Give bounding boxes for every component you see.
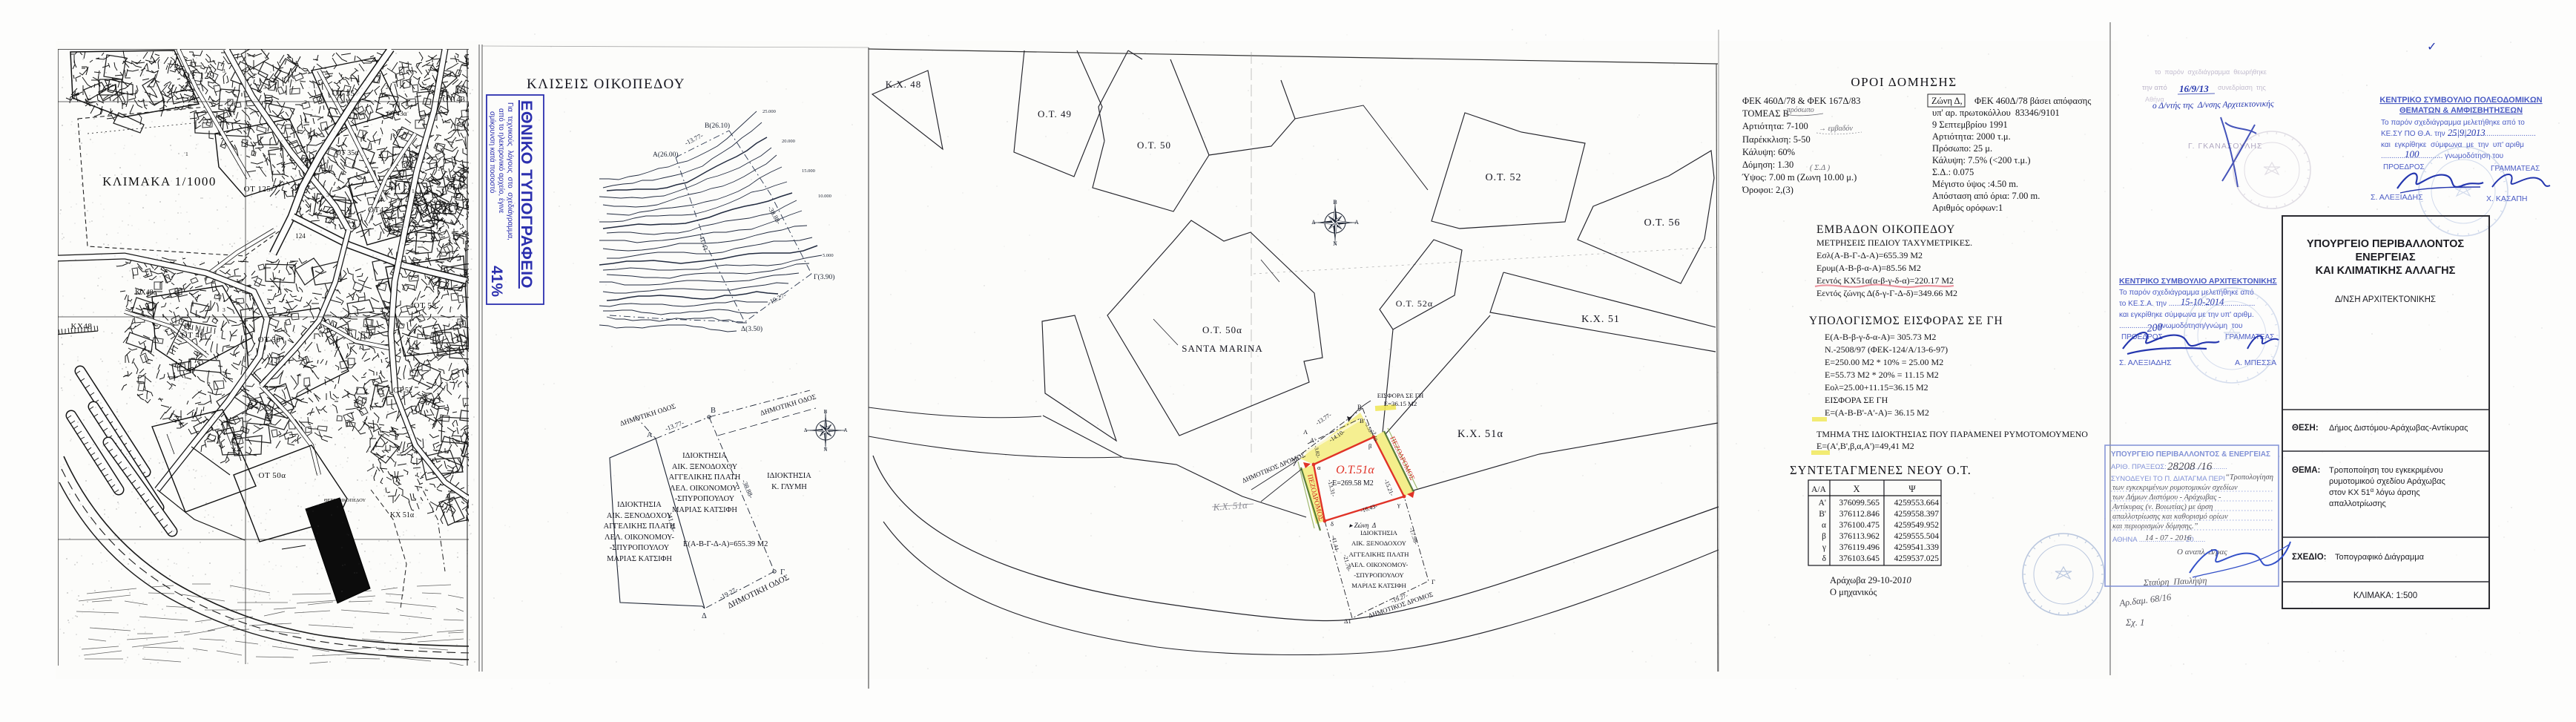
svg-text:1: 1	[412, 188, 415, 194]
svg-text:Ο μηχανικός: Ο μηχανικός	[1830, 587, 1877, 597]
svg-text:και εγκρίθηκε σύμφωνα με την υ: και εγκρίθηκε σύμφωνα με την υπ' αριθμ.	[2119, 310, 2254, 319]
svg-text:Α/Α: Α/Α	[1811, 485, 1827, 494]
svg-text:“Τροπολογίηση: “Τροπολογίηση	[2225, 473, 2273, 482]
svg-text:Εσλ(Α-Β-Γ-Δ-Α)=655.39 Μ2: Εσλ(Α-Β-Γ-Δ-Α)=655.39 Μ2	[1816, 250, 1923, 260]
svg-text:2: 2	[282, 180, 285, 187]
svg-text:Παρέκκλιση: 5-50: Παρέκκλιση: 5-50	[1742, 134, 1811, 145]
svg-text:Σ. ΑΛΕΞΙΑΔΗΣ: Σ. ΑΛΕΞΙΑΔΗΣ	[2371, 193, 2423, 202]
svg-text:3: 3	[319, 329, 322, 335]
svg-text:376103.645: 376103.645	[1839, 554, 1880, 563]
svg-text:β: β	[1822, 532, 1826, 541]
svg-text:συνεδρίαση της: συνεδρίαση της	[2218, 84, 2266, 91]
svg-text:Γ: Γ	[1432, 578, 1435, 585]
svg-text:Κ.Χ. 51: Κ.Χ. 51	[1581, 314, 1620, 325]
svg-text:Β: Β	[1333, 199, 1337, 206]
svg-text:Πρόσωπο: 25 μ.: Πρόσωπο: 25 μ.	[1932, 143, 1992, 154]
svg-text:3: 3	[326, 191, 329, 198]
svg-text:4259553.664: 4259553.664	[1894, 499, 1940, 508]
svg-text:ΘΕΜΑ:: ΘΕΜΑ:	[2292, 466, 2320, 475]
svg-text:ΠΡΟΕΔΡΟΣ: ΠΡΟΕΔΡΟΣ	[2383, 163, 2425, 171]
svg-text:Εολ=25.00+11.15=36.15 Μ2: Εολ=25.00+11.15=36.15 Μ2	[1825, 382, 1928, 393]
svg-text:SANTA MARINA: SANTA MARINA	[1182, 343, 1263, 354]
svg-text:ΚΛΙΜΑΚΑ: 1:500: ΚΛΙΜΑΚΑ: 1:500	[2353, 591, 2417, 600]
svg-text:Απόσταση από όρια: 7.00 m.: Απόσταση από όρια: 7.00 m.	[1932, 191, 2040, 201]
svg-text:Τοπογραφικό Διάγραμμα: Τοπογραφικό Διάγραμμα	[2335, 553, 2425, 562]
svg-text:ΛΕΛ. ΟΙΚΟΝΟΜΟΥ-: ΛΕΛ. ΟΙΚΟΝΟΜΟΥ-	[605, 534, 674, 542]
svg-text:Α: Α	[647, 431, 653, 439]
svg-text:16/9/13: 16/9/13	[2179, 83, 2209, 94]
svg-text:376100.475: 376100.475	[1839, 521, 1880, 530]
svg-text:ΑΙΚ. ΞΕΝΟΔΟΧΟΥ: ΑΙΚ. ΞΕΝΟΔΟΧΟΥ	[672, 463, 738, 471]
svg-text:Β: Β	[1357, 403, 1362, 410]
svg-text:Β(26.10): Β(26.10)	[705, 122, 730, 130]
svg-text:β: β	[1368, 442, 1371, 450]
svg-text:3: 3	[245, 410, 248, 417]
svg-text:14 - 07 - 2016: 14 - 07 - 2016	[2145, 534, 2192, 542]
svg-text:ΕΝΕΡΓΕΙΑΣ: ΕΝΕΡΓΕΙΑΣ	[2355, 252, 2415, 263]
svg-text:Ο.Τ. 50: Ο.Τ. 50	[1137, 140, 1171, 151]
svg-text:ΚΧ48α: ΚΧ48α	[135, 289, 157, 297]
svg-text:ΕΙΣΦΟΡΑ ΣΕ ΓΗ: ΕΙΣΦΟΡΑ ΣΕ ΓΗ	[1825, 395, 1888, 405]
svg-text:ΟΤ 35: ΟΤ 35	[332, 89, 355, 98]
svg-text:Ε=269.58 Μ2: Ε=269.58 Μ2	[1332, 479, 1374, 488]
svg-text:2: 2	[415, 143, 418, 150]
svg-text:2: 2	[386, 84, 389, 91]
svg-text:Χ: Χ	[1853, 484, 1859, 494]
svg-text:ΟΡΟΙ ΔΟΜΗΣΗΣ: ΟΡΟΙ ΔΟΜΗΣΗΣ	[1851, 75, 1957, 89]
svg-text:ΟΤ 53: ΟΤ 53	[414, 301, 437, 310]
svg-text:→ εμβαδόν: → εμβαδόν	[1819, 125, 1853, 133]
svg-text:Ε=250.00 Μ2 * 10% = 25.00 Μ2: Ε=250.00 Μ2 * 10% = 25.00 Μ2	[1825, 357, 1943, 367]
svg-text:Σχ. 1: Σχ. 1	[2125, 617, 2144, 628]
svg-text:Ψ: Ψ	[1908, 484, 1916, 494]
svg-text:2: 2	[208, 381, 211, 387]
svg-text:ΛΕΛ. ΟΙΚΟΝΟΜΟΥ-: ΛΕΛ. ΟΙΚΟΝΟΜΟΥ-	[1350, 561, 1409, 568]
svg-text:100: 100	[2405, 148, 2419, 160]
svg-text:Εεντός ζώνης Δ(δ-γ-Γ-Δ-δ)=349.: Εεντός ζώνης Δ(δ-γ-Γ-Δ-δ)=349.66 Μ2	[1816, 288, 1957, 298]
svg-text:Κ. ΓΛΥΜΗ: Κ. ΓΛΥΜΗ	[771, 483, 807, 491]
svg-text:Όροφοι: 2,(3): Όροφοι: 2,(3)	[1742, 185, 1793, 195]
svg-text:25|9|2013: 25|9|2013	[2448, 128, 2486, 138]
svg-text:πρόσωπο: πρόσωπο	[1787, 106, 1814, 114]
svg-text:ΥΠΟΥΡΓΕΙΟ ΠΕΡΙΒΑΛΛΟΝΤΟΣ & ΕΝΕΡ: ΥΠΟΥΡΓΕΙΟ ΠΕΡΙΒΑΛΛΟΝΤΟΣ & ΕΝΕΡΓΕΙΑΣ	[2111, 450, 2270, 459]
svg-text:Δ: Δ	[702, 612, 707, 620]
svg-text:ΣΥΝΤΕΤΑΓΜΕΝΕΣ ΝΕΟΥ Ο.Τ.: ΣΥΝΤΕΤΑΓΜΕΝΕΣ ΝΕΟΥ Ο.Τ.	[1790, 463, 1971, 477]
svg-text:-ΣΠΥΡΟΠΟΥΛΟΥ: -ΣΠΥΡΟΠΟΥΛΟΥ	[675, 495, 735, 503]
svg-text:2: 2	[349, 114, 352, 120]
svg-text:α: α	[1822, 521, 1826, 530]
svg-text:-ΣΠΥΡΟΠΟΥΛΟΥ: -ΣΠΥΡΟΠΟΥΛΟΥ	[610, 544, 670, 552]
svg-text:2: 2	[415, 344, 418, 350]
svg-text:Εεντός ΚΧ51α(α-β-γ-δ-α)=220.17: Εεντός ΚΧ51α(α-β-γ-δ-α)=220.17 Μ2	[1816, 275, 1954, 286]
svg-text:Ζώνη Δ,: Ζώνη Δ,	[1931, 96, 1963, 106]
svg-text:δ: δ	[1822, 554, 1826, 563]
svg-text:10.000: 10.000	[818, 194, 831, 199]
svg-text:Αριθμός ορόφων:1: Αριθμός ορόφων:1	[1932, 203, 2003, 213]
svg-text:5.000: 5.000	[823, 253, 834, 258]
svg-text:ΑΓΓΕΛΙΚΗΣ ΠΛΑΤΗ: ΑΓΓΕΛΙΚΗΣ ΠΛΑΤΗ	[669, 473, 741, 482]
svg-text:ΟΤ 52: ΟΤ 52	[393, 387, 412, 395]
svg-text:απαλλοτρίωσης: απαλλοτρίωσης	[2329, 499, 2386, 508]
svg-text:Κ.Χ. 48: Κ.Χ. 48	[886, 79, 922, 90]
svg-text:α: α	[1317, 464, 1321, 471]
svg-text:ΕΙΣΦΟΡΑ ΣΕ ΓΗ: ΕΙΣΦΟΡΑ ΣΕ ΓΗ	[1377, 392, 1424, 399]
svg-text:Ο.Τ. 52: Ο.Τ. 52	[1485, 172, 1521, 183]
svg-text:των Δήμων Διστόμου - Αράχωβας: των Δήμων Διστόμου - Αράχωβας -	[2112, 493, 2221, 502]
svg-text:Δόμηση: 1.30: Δόμηση: 1.30	[1742, 160, 1793, 170]
svg-text:ΜΑΡΙΑΣ ΚΑΤΣΙΦΗ: ΜΑΡΙΑΣ ΚΑΤΣΙΦΗ	[672, 506, 737, 514]
svg-text:ΚΑΙ ΚΛΙΜΑΤΙΚΗΣ ΑΛΛΑΓΗΣ: ΚΑΙ ΚΛΙΜΑΤΙΚΗΣ ΑΛΛΑΓΗΣ	[2316, 265, 2456, 277]
svg-text:3: 3	[445, 381, 448, 387]
svg-text:ΜΑΡΙΑΣ ΚΑΤΣΙΦΗ: ΜΑΡΙΑΣ ΚΑΤΣΙΦΗ	[607, 555, 672, 563]
svg-text:των εγκεκριμένων ρυμοτομικών σ: των εγκεκριμένων ρυμοτομικών σχεδίων	[2112, 484, 2238, 492]
svg-text:από το ηλεκτρονικό αρχείο, έγι: από το ηλεκτρονικό αρχείο, έγινε	[497, 108, 505, 214]
svg-text:124: 124	[295, 232, 306, 240]
svg-text:γ: γ	[1822, 543, 1826, 552]
svg-text:Ε(Α-Β-Γ-Δ-Α)=655.39 Μ2: Ε(Α-Β-Γ-Δ-Α)=655.39 Μ2	[683, 540, 768, 548]
svg-text:3: 3	[223, 68, 225, 74]
svg-text:ΟΤ 49: ΟΤ 49	[182, 331, 205, 340]
svg-text:ΕΘΝΙΚΟ ΤΥΠΟΓΡΑΦΕΙΟ: ΕΘΝΙΚΟ ΤΥΠΟΓΡΑΦΕΙΟ	[518, 100, 536, 289]
svg-text:376099.565: 376099.565	[1839, 499, 1880, 508]
svg-text:το παρόν σχεδιάγραμμα θεωρή: το παρόν σχεδιάγραμμα θεωρήθηκε	[2155, 68, 2267, 76]
svg-text:1: 1	[185, 151, 188, 157]
svg-text:ΘΕΜΑΤΩΝ & ΑΜΦΙΣΒΗΤΗΣΕΩΝ: ΘΕΜΑΤΩΝ & ΑΜΦΙΣΒΗΤΗΣΕΩΝ	[2399, 106, 2523, 115]
svg-text:ΚΕΝΤΡΙΚΟ ΣΥΜΒΟΥΛΙΟ ΑΡΧΙΤΕΚΤΟΝΙ: ΚΕΝΤΡΙΚΟ ΣΥΜΒΟΥΛΙΟ ΑΡΧΙΤΕΚΤΟΝΙΚΗΣ	[2119, 277, 2277, 286]
svg-text:Το παρόν σχεδιάγραμμα μελετήθη: Το παρόν σχεδιάγραμμα μελετήθηκε από το	[2381, 118, 2525, 127]
svg-text:Γ. ΓΚΑΝΑΣΟΥΛΗΣ: Γ. ΓΚΑΝΑΣΟΥΛΗΣ	[2188, 142, 2262, 151]
svg-text:123: 123	[324, 217, 335, 224]
svg-text:Ε=(Α-Β-Β'-Α'-Α)= 36.15 Μ2: Ε=(Α-Β-Β'-Α'-Α)= 36.15 Μ2	[1825, 407, 1929, 418]
svg-text:15.000: 15.000	[802, 168, 815, 174]
svg-text:Α: Α	[843, 427, 847, 433]
svg-text:σμίκρυνση κατά ποσοστό: σμίκρυνση κατά ποσοστό	[488, 111, 496, 194]
svg-text:ΚΛΙΜΑΚΑ 1/1000: ΚΛΙΜΑΚΑ 1/1000	[102, 174, 217, 188]
svg-text:Α: Α	[1354, 219, 1359, 226]
svg-text:ΟΤ47: ΟΤ47	[368, 206, 389, 214]
svg-text:Το παρόν σχεδιάγραμμα μελετήθη: Το παρόν σχεδιάγραμμα μελετήθηκε από	[2119, 288, 2254, 297]
svg-text:ΙΔΙΟΚΤΗΣΙΑ: ΙΔΙΟΚΤΗΣΙΑ	[617, 501, 662, 509]
svg-text:ΟΤ 35α: ΟΤ 35α	[336, 149, 360, 157]
svg-text:ΦΕΚ 460Δ/78 & ΦΕΚ 167Δ/83: ΦΕΚ 460Δ/78 & ΦΕΚ 167Δ/83	[1742, 96, 1860, 106]
svg-text:ΟΤ 129: ΟΤ 129	[183, 70, 215, 81]
svg-text:✓: ✓	[2427, 41, 2437, 53]
svg-text:ΚΧ 51α: ΚΧ 51α	[390, 511, 415, 519]
svg-text:Δ: Δ	[804, 427, 808, 433]
svg-text:δ: δ	[1331, 520, 1334, 528]
svg-text:Ερυμ(Α-Β-β-α-Α)=85.56 Μ2: Ερυμ(Α-Β-β-α-Α)=85.56 Μ2	[1816, 263, 1921, 273]
svg-text:4259558.397: 4259558.397	[1894, 510, 1940, 519]
svg-text:Σ. ΑΛΕΞΙΑΔΗΣ: Σ. ΑΛΕΞΙΑΔΗΣ	[2119, 358, 2172, 367]
svg-text:υπ' αρ. πρωτοκόλλου 83346/910: υπ' αρ. πρωτοκόλλου 83346/9101	[1932, 108, 2060, 118]
svg-text:Τροποποίηση του εγκεκριμένου: Τροποποίηση του εγκεκριμένου	[2329, 466, 2443, 475]
svg-text:ΜΑΡΙΑΣ ΚΑΤΣΙΦΗ: ΜΑΡΙΑΣ ΚΑΤΣΙΦΗ	[1351, 582, 1406, 589]
svg-text:ΕΜΒΑΔΟΝ ΟΙΚΟΠΕΔΟΥ: ΕΜΒΑΔΟΝ ΟΙΚΟΠΕΔΟΥ	[1816, 223, 1955, 236]
svg-text:Β': Β'	[1819, 510, 1826, 519]
svg-text:Α': Α'	[1310, 436, 1316, 444]
svg-text:Ο αναπλ. Δ/ρας: Ο αναπλ. Δ/ρας	[2177, 548, 2227, 557]
svg-text:41%: 41%	[488, 266, 505, 297]
svg-text:ΙΔΙΟΚΤΗΣΙΑ: ΙΔΙΟΚΤΗΣΙΑ	[1360, 529, 1398, 536]
svg-text:2: 2	[438, 165, 441, 172]
svg-text:376119.496: 376119.496	[1839, 543, 1880, 552]
svg-text:4259549.952: 4259549.952	[1894, 521, 1940, 530]
svg-text:376112.846: 376112.846	[1839, 510, 1880, 519]
svg-text:Αρτιότητα: 7-100: Αρτιότητα: 7-100	[1742, 121, 1808, 131]
svg-text:Αράχωβα 29-10-2010: Αράχωβα 29-10-2010	[1830, 575, 1911, 585]
svg-text:ΟΤ 46: ΟΤ 46	[447, 183, 466, 191]
svg-text:4259541.339: 4259541.339	[1894, 543, 1940, 552]
svg-text:ΥΠΟΥΡΓΕΙΟ ΠΕΡΙΒΑΛΛΟΝΤΟΣ: ΥΠΟΥΡΓΕΙΟ ΠΕΡΙΒΑΛΛΟΝΤΟΣ	[2307, 238, 2464, 250]
svg-text:Ο.Τ. 52α: Ο.Τ. 52α	[1396, 298, 1433, 309]
svg-text:Κάλυψη: 60%: Κάλυψη: 60%	[1742, 147, 1795, 157]
svg-text:Α(26.00): Α(26.00)	[653, 151, 679, 159]
svg-text:ΙΔΙΟΚΤΗΣΙΑ: ΙΔΙΟΚΤΗΣΙΑ	[767, 472, 811, 480]
svg-text:2: 2	[304, 99, 307, 105]
svg-text:( Σ.Δ ): ( Σ.Δ )	[1810, 164, 1831, 172]
svg-text:ΘΕΣΗ ΟΙΚΟΠΕΔΟΥ: ΘΕΣΗ ΟΙΚΟΠΕΔΟΥ	[324, 498, 366, 503]
svg-text:ΚΕΝΤΡΙΚΟ ΣΥΜΒΟΥΛΙΟ ΠΟΛΕΟΔΟΜΙΚΩ: ΚΕΝΤΡΙΚΟ ΣΥΜΒΟΥΛΙΟ ΠΟΛΕΟΔΟΜΙΚΩΝ	[2379, 96, 2542, 105]
svg-text:▸ Ζώνη Δ: ▸ Ζώνη Δ	[1349, 522, 1376, 529]
svg-text:ΚΧ48: ΚΧ48	[71, 322, 93, 331]
svg-text:ΟΤ 50: ΟΤ 50	[258, 335, 281, 344]
svg-text:-ΣΠΥΡΟΠΟΥΛΟΥ: -ΣΠΥΡΟΠΟΥΛΟΥ	[1354, 571, 1404, 579]
svg-text:Δ(3.50): Δ(3.50)	[741, 325, 762, 333]
svg-text:Για τεχνικούς λόγους στο σ: Για τεχνικούς λόγους στο σχεδιάγραμμα,	[506, 102, 514, 240]
svg-text:ΘΕΣΗ:: ΘΕΣΗ:	[2292, 424, 2319, 433]
svg-text:Αρτιότητα: 2000 τ.μ.: Αρτιότητα: 2000 τ.μ.	[1932, 131, 2011, 142]
svg-text:4259537.025: 4259537.025	[1894, 554, 1940, 563]
svg-text:ΛΕΛ. ΟΙΚΟΝΟΜΟΥ-: ΛΕΛ. ΟΙΚΟΝΟΜΟΥ-	[670, 485, 739, 493]
svg-text:9 Σεπτεμβρίου 1991: 9 Σεπτεμβρίου 1991	[1932, 119, 2008, 130]
svg-text:28208 /16: 28208 /16	[2167, 461, 2213, 473]
svg-text:ΥΠΟΛΟΓΙΣΜΟΣ ΕΙΣΦΟΡΑΣ ΣΕ ΓΗ: ΥΠΟΛΟΓΙΣΜΟΣ ΕΙΣΦΟΡΑΣ ΣΕ ΓΗ	[1809, 315, 2003, 327]
svg-text:ρυμοτομικού σχεδίου Αράχωβας: ρυμοτομικού σχεδίου Αράχωβας	[2329, 477, 2445, 486]
svg-text:ΑΙΚ. ΞΕΝΟΔΟΧΟΥ: ΑΙΚ. ΞΕΝΟΔΟΧΟΥ	[1351, 539, 1407, 547]
svg-text:Ο.Τ. 50α: Ο.Τ. 50α	[1202, 324, 1242, 335]
svg-text:ΤΜΗΜΑ ΤΗΣ ΙΔΙΟΚΤΗΣΙΑΣ ΠΟΥ ΠΑΡΑ: ΤΜΗΜΑ ΤΗΣ ΙΔΙΟΚΤΗΣΙΑΣ ΠΟΥ ΠΑΡΑΜΕΝΕΙ ΡΥΜΟ…	[1816, 429, 2088, 439]
svg-text:2: 2	[349, 314, 352, 321]
svg-text:ΙΔΙΟΚΤΗΣΙΑ: ΙΔΙΟΚΤΗΣΙΑ	[682, 452, 727, 460]
svg-text:στον ΚΧ 51α λόγω άρσης: στον ΚΧ 51α λόγω άρσης	[2329, 487, 2420, 497]
svg-text:ΓΡΑΜΜΑΤΕΑΣ: ΓΡΑΜΜΑΤΕΑΣ	[2491, 165, 2540, 173]
svg-text:Α: Α	[1303, 428, 1308, 436]
svg-text:2: 2	[386, 314, 389, 321]
svg-text:ΑΙΚ. ΞΕΝΟΔΟΧΟΥ: ΑΙΚ. ΞΕΝΟΔΟΧΟΥ	[607, 512, 673, 520]
svg-text:και περιορισμών δόμησης.”: και περιορισμών δόμησης.”	[2112, 522, 2198, 531]
svg-text:4259555.504: 4259555.504	[1894, 532, 1940, 541]
svg-text:γ: γ	[1397, 501, 1400, 508]
svg-text:Δ: Δ	[1311, 219, 1315, 226]
svg-text:Β: Β	[824, 409, 828, 415]
svg-text:ΟΤ 43: ΟΤ 43	[443, 95, 466, 104]
svg-text:Κ.Χ. 51α: Κ.Χ. 51α	[1457, 428, 1503, 440]
svg-text:ΑΓΓΕΛΙΚΗΣ ΠΛΑΤΗ: ΑΓΓΕΛΙΚΗΣ ΠΛΑΤΗ	[604, 522, 676, 531]
svg-text:Α': Α'	[1819, 499, 1826, 508]
svg-text:Β': Β'	[1360, 417, 1366, 424]
svg-text:Ο.Τ. 56: Ο.Τ. 56	[1644, 217, 1680, 229]
svg-text:ΣΥΝΟΔΕΥΕΙ ΤΟ Π. ΔΙΑΤΑΓΜΑ ΠΕΡΙ: ΣΥΝΟΔΕΥΕΙ ΤΟ Π. ΔΙΑΤΑΓΜΑ ΠΕΡΙ	[2111, 475, 2225, 483]
svg-text:Ο.Τ.51α: Ο.Τ.51α	[1336, 464, 1374, 476]
svg-text:Ν: Ν	[823, 447, 827, 453]
svg-text:ΑΓΓΕΛΙΚΗΣ ΠΛΑΤΗ: ΑΓΓΕΛΙΚΗΣ ΠΛΑΤΗ	[1348, 551, 1409, 558]
svg-text:Ε(Α-Β-β-γ-δ-α-Α)= 305.73 Μ2: Ε(Α-Β-β-γ-δ-α-Α)= 305.73 Μ2	[1825, 332, 1936, 342]
svg-text:Κάλυψη: 7.5% (<200 τ.μ.): Κάλυψη: 7.5% (<200 τ.μ.)	[1932, 155, 2030, 165]
svg-text:25.000: 25.000	[762, 109, 776, 114]
svg-text:Δήμος Διστόμου-Αράχωβας-Αντίκυ: Δήμος Διστόμου-Αράχωβας-Αντίκυρας	[2329, 424, 2468, 433]
svg-text:Δ/ΝΣΗ ΑΡΧΙΤΕΚΤΟΝΙΚΗΣ: Δ/ΝΣΗ ΑΡΧΙΤΕΚΤΟΝΙΚΗΣ	[2335, 295, 2436, 304]
svg-text:απαλλοτρίωσης και καθορισμό ορ: απαλλοτρίωσης και καθορισμό ορίων	[2112, 513, 2228, 521]
svg-text:376113.962: 376113.962	[1839, 532, 1880, 541]
svg-text:Σ.Δ.: 0.075: Σ.Δ.: 0.075	[1932, 167, 1974, 177]
svg-text:20.000: 20.000	[782, 139, 795, 144]
svg-text:ΟΤ 125: ΟΤ 125	[244, 185, 271, 194]
svg-text:3: 3	[263, 84, 266, 91]
svg-text:Ο.Τ. 49: Ο.Τ. 49	[1038, 108, 1072, 119]
svg-text:Ύψος: 7.00 m (Ζωνη 10.00 μ.): Ύψος: 7.00 m (Ζωνη 10.00 μ.)	[1742, 172, 1857, 183]
svg-text:ΤΟΜΕΑΣ Β: ΤΟΜΕΑΣ Β	[1742, 108, 1789, 119]
svg-text:Ε=55.73 Μ2 * 20% = 11.15 Μ2: Ε=55.73 Μ2 * 20% = 11.15 Μ2	[1825, 370, 1939, 380]
svg-text:Ε=(Α',Β',β,α,Α')=49,41 Μ2: Ε=(Α',Β',β,α,Α')=49,41 Μ2	[1816, 441, 1914, 451]
svg-text:ΣΧΕΔΙΟ:: ΣΧΕΔΙΟ:	[2292, 553, 2326, 562]
svg-text:ΜΕΤΡΗΣΕΙΣ ΠΕΔΙΟΥ ΤΑΧΥΜΕΤΡΙΚΕΣ.: ΜΕΤΡΗΣΕΙΣ ΠΕΔΙΟΥ ΤΑΧΥΜΕΤΡΙΚΕΣ.	[1816, 237, 1972, 248]
svg-text:ΟΤ43α: ΟΤ43α	[386, 111, 406, 118]
svg-text:την από: την από	[2142, 84, 2167, 92]
svg-text:Γ(3.90): Γ(3.90)	[814, 273, 834, 281]
svg-text:ΚΛΙΣΕΙΣ ΟΙΚΟΠΕΔΟΥ: ΚΛΙΣΕΙΣ ΟΙΚΟΠΕΔΟΥ	[527, 76, 685, 92]
svg-text:Μέγιστο ύψος :4.50 m.: Μέγιστο ύψος :4.50 m.	[1932, 179, 2018, 189]
svg-text:Αντίκυρας (ν. Βοιωτίας) με άρσ: Αντίκυρας (ν. Βοιωτίας) με άρση	[2112, 503, 2213, 511]
svg-text:ΟΤ 50α: ΟΤ 50α	[259, 471, 286, 480]
svg-text:Ν.-2508/97 (ΦΕΚ-124/Α/13-6-97): Ν.-2508/97 (ΦΕΚ-124/Α/13-6-97)	[1825, 344, 1948, 355]
svg-text:2: 2	[267, 299, 270, 306]
svg-text:Β: Β	[711, 407, 716, 415]
svg-text:200: 200	[2147, 322, 2163, 335]
svg-text:Ν: Ν	[1333, 240, 1337, 247]
svg-text:ΦΕΚ 460Δ/78 βάσει απόφασης: ΦΕΚ 460Δ/78 βάσει απόφασης	[1974, 96, 2091, 106]
svg-text:Δ1: Δ1	[1344, 617, 1351, 625]
svg-text:3: 3	[223, 306, 225, 313]
svg-text:Ε=36.15 Μ2: Ε=36.15 Μ2	[1384, 400, 1417, 407]
svg-text:.................. γνωμοδότηση: .................. γνωμοδότηση/γνώμη του	[2119, 321, 2242, 330]
